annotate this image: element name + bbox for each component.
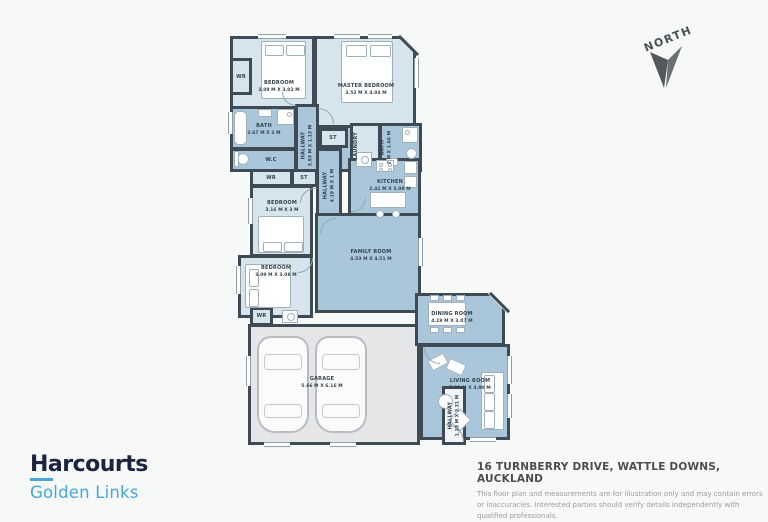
room-label-bedroom-3: BEDROOM 3.09 M X 3.08 M <box>246 264 306 279</box>
window <box>228 112 233 134</box>
room-label-bath: BATH 2.67 M X 2 M <box>238 122 290 137</box>
fridge-icon <box>404 161 417 174</box>
room-label-st-upper: ST <box>322 134 344 142</box>
room-label-garage: GARAGE 5.66 M X 6.16 M <box>292 375 352 390</box>
room-label-bedroom-1: BEDROOM 3.09 M X 3.02 M <box>249 79 309 94</box>
north-label: NORTH <box>642 24 694 55</box>
room-label-dining: DINING ROOM 4.19 M X 3.07 M <box>420 310 484 325</box>
office-name: Golden Links <box>30 483 148 502</box>
room-label-family: FAMILY ROOM 4.53 M X 4.51 M <box>338 248 404 263</box>
room-label-ensuite: BATH 2 M X 1.66 M <box>378 125 393 171</box>
stool-icon <box>392 210 400 218</box>
window <box>330 442 356 447</box>
shower-drain-icon <box>405 130 410 135</box>
sink-icon <box>258 109 272 117</box>
washer-door-icon <box>361 156 369 164</box>
brand-underline <box>30 478 53 481</box>
pillow-icon <box>346 45 367 57</box>
pillow-icon <box>265 45 284 56</box>
room-label-wr-3: WR <box>251 312 272 320</box>
chair-icon <box>430 327 439 333</box>
listing-address: 16 TURNBERRY DRIVE, WATTLE DOWNS, AUCKLA… <box>477 461 765 485</box>
window <box>264 442 290 447</box>
window <box>236 266 241 294</box>
north-compass: NORTH <box>628 18 704 98</box>
room-label-hallway-mid: HALLWAY 4.19 M X 1 M <box>321 158 336 214</box>
disclaimer-text: This floor plan and measurements are for… <box>477 489 765 522</box>
north-arrow-icon: NORTH <box>628 18 704 98</box>
cushion-icon <box>484 393 495 411</box>
room-label-wr-2: WR <box>256 174 286 182</box>
room-label-master: MASTER BEDROOM 3.52 M X 4.04 M <box>330 82 402 97</box>
bed-icon <box>258 216 304 253</box>
window <box>258 34 286 39</box>
toilet-icon <box>406 148 417 159</box>
room-label-bedroom-2: BEDROOM 3.16 M X 3 M <box>252 199 312 214</box>
room-label-wc: W.C <box>256 156 286 164</box>
chair-icon <box>456 327 465 333</box>
shower-icon <box>402 127 418 143</box>
chair-icon <box>456 295 465 301</box>
pillow-icon <box>370 45 391 57</box>
chair-icon <box>430 295 439 301</box>
room-label-kitchen: KITCHEN 2.41 M X 3.08 M <box>358 178 422 193</box>
window <box>246 356 251 386</box>
listing-info: 16 TURNBERRY DRIVE, WATTLE DOWNS, AUCKLA… <box>477 461 765 522</box>
rear-window-icon <box>264 404 302 418</box>
window <box>418 238 423 266</box>
window <box>507 394 512 418</box>
hot-water-cylinder-icon <box>282 310 298 323</box>
kitchen-island-icon <box>370 192 406 208</box>
stool-icon <box>376 210 384 218</box>
chair-icon <box>443 327 452 333</box>
pillow-icon <box>263 242 282 252</box>
north-arrow-left-wing <box>650 52 668 88</box>
pillow-icon <box>249 289 259 307</box>
room-label-laundry: LAUNDRY <box>352 126 360 166</box>
room-label-hallway-upper: HALLWAY 3.93 M X 1.13 M <box>299 116 314 176</box>
rear-window-icon <box>322 404 360 418</box>
window <box>507 356 512 384</box>
toilet-tank-icon <box>234 151 239 167</box>
room-label-hallway-entry: HALLWAY 1.23 M X 3.31 M <box>446 388 461 444</box>
brand-name: Harcourts <box>30 454 148 476</box>
agency-logo: Harcourts Golden Links <box>30 454 148 502</box>
shower-drain-icon <box>287 112 292 117</box>
windshield-icon <box>264 354 302 370</box>
room-label-wr-1: WR <box>231 73 251 81</box>
room-label-living: LIVING ROOM 5.32 M X 4.90 M <box>438 377 502 392</box>
window <box>334 34 360 39</box>
north-arrow-right-wing <box>666 46 682 88</box>
cylinder-icon <box>287 313 295 321</box>
cushion-icon <box>484 411 495 429</box>
window <box>470 437 496 442</box>
pillow-icon <box>284 242 303 252</box>
pillow-icon <box>286 45 305 56</box>
window <box>414 58 419 88</box>
window <box>368 34 392 39</box>
windshield-icon <box>322 354 360 370</box>
chair-icon <box>443 295 452 301</box>
